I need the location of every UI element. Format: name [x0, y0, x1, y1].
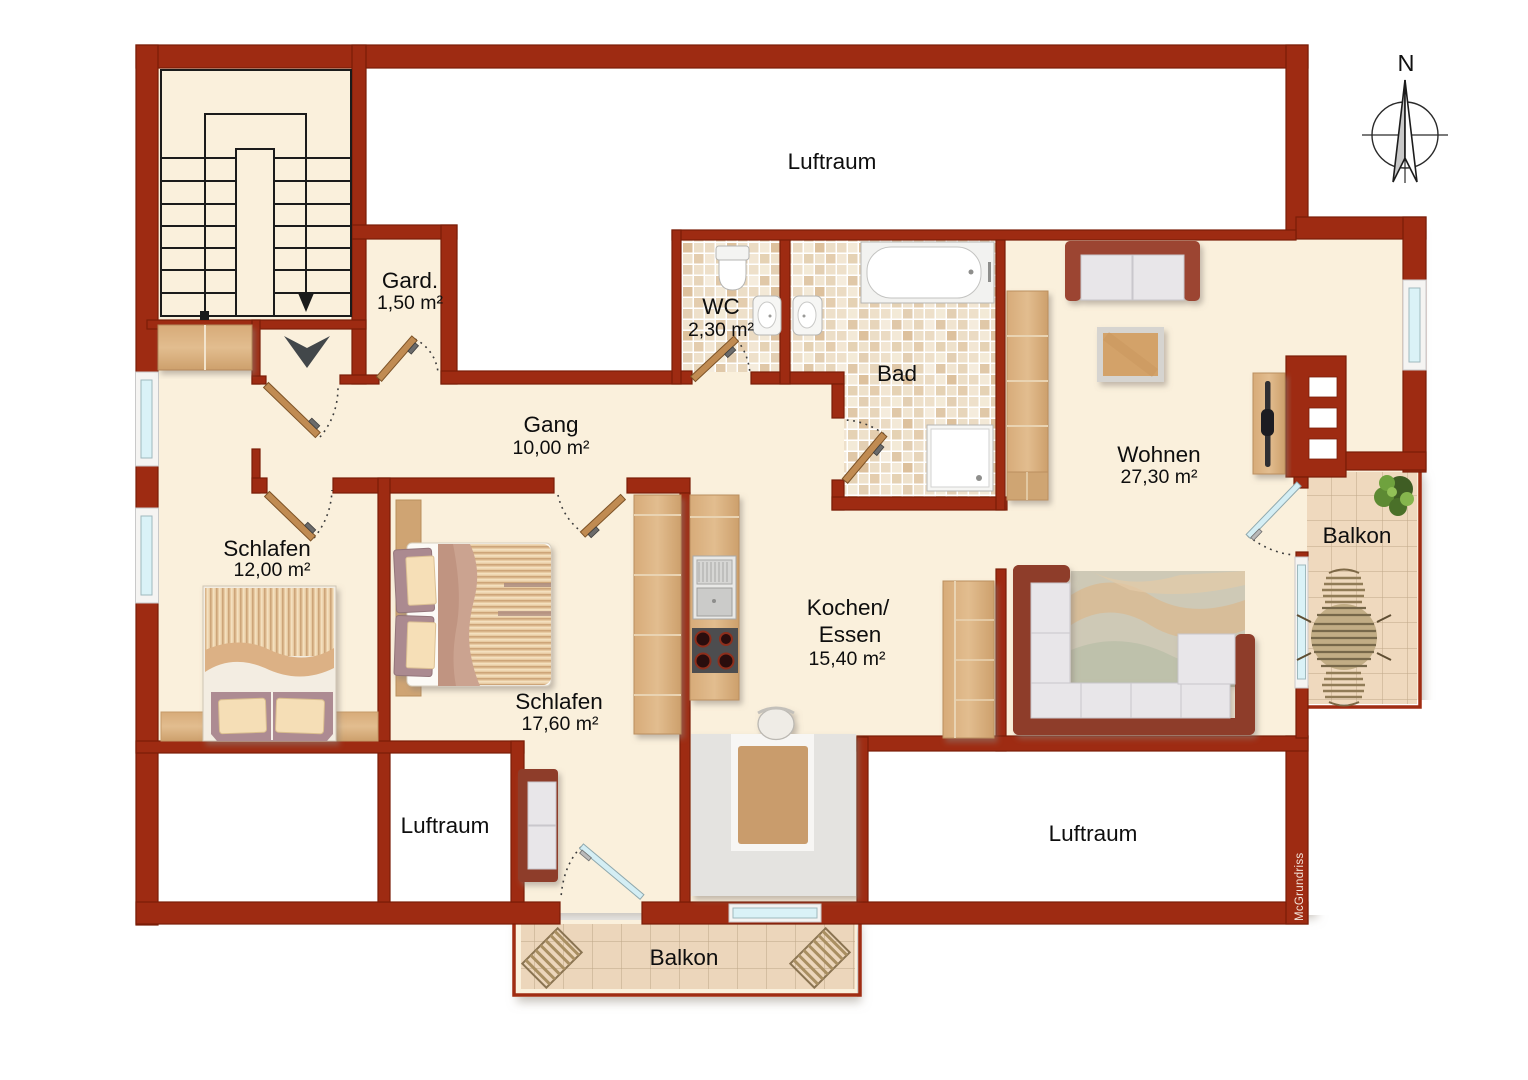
svg-text:2,30 m²: 2,30 m² [688, 319, 755, 341]
svg-text:1,50 m²: 1,50 m² [377, 292, 444, 314]
svg-text:Schlafen: Schlafen [223, 536, 311, 561]
svg-text:Essen: Essen [819, 622, 882, 647]
svg-text:Balkon: Balkon [1323, 523, 1392, 548]
svg-text:Luftraum: Luftraum [788, 149, 877, 174]
svg-text:Gang: Gang [523, 412, 578, 437]
svg-text:Schlafen: Schlafen [515, 689, 603, 714]
svg-text:27,30 m²: 27,30 m² [1121, 466, 1198, 488]
svg-text:Kochen/: Kochen/ [807, 595, 890, 620]
svg-text:10,00 m²: 10,00 m² [513, 437, 590, 459]
svg-text:WC: WC [702, 294, 740, 319]
svg-text:Luftraum: Luftraum [1049, 821, 1138, 846]
svg-text:Wohnen: Wohnen [1117, 442, 1200, 467]
svg-text:Bad: Bad [877, 361, 917, 386]
svg-text:Luftraum: Luftraum [401, 813, 490, 838]
svg-text:12,00 m²: 12,00 m² [234, 559, 311, 581]
svg-text:N: N [1398, 50, 1415, 76]
svg-text:17,60 m²: 17,60 m² [522, 713, 599, 735]
svg-text:Gard.: Gard. [382, 268, 438, 293]
svg-text:McGrundriss: McGrundriss [1294, 853, 1306, 921]
svg-text:15,40 m²: 15,40 m² [809, 648, 886, 670]
svg-text:Balkon: Balkon [650, 945, 719, 970]
